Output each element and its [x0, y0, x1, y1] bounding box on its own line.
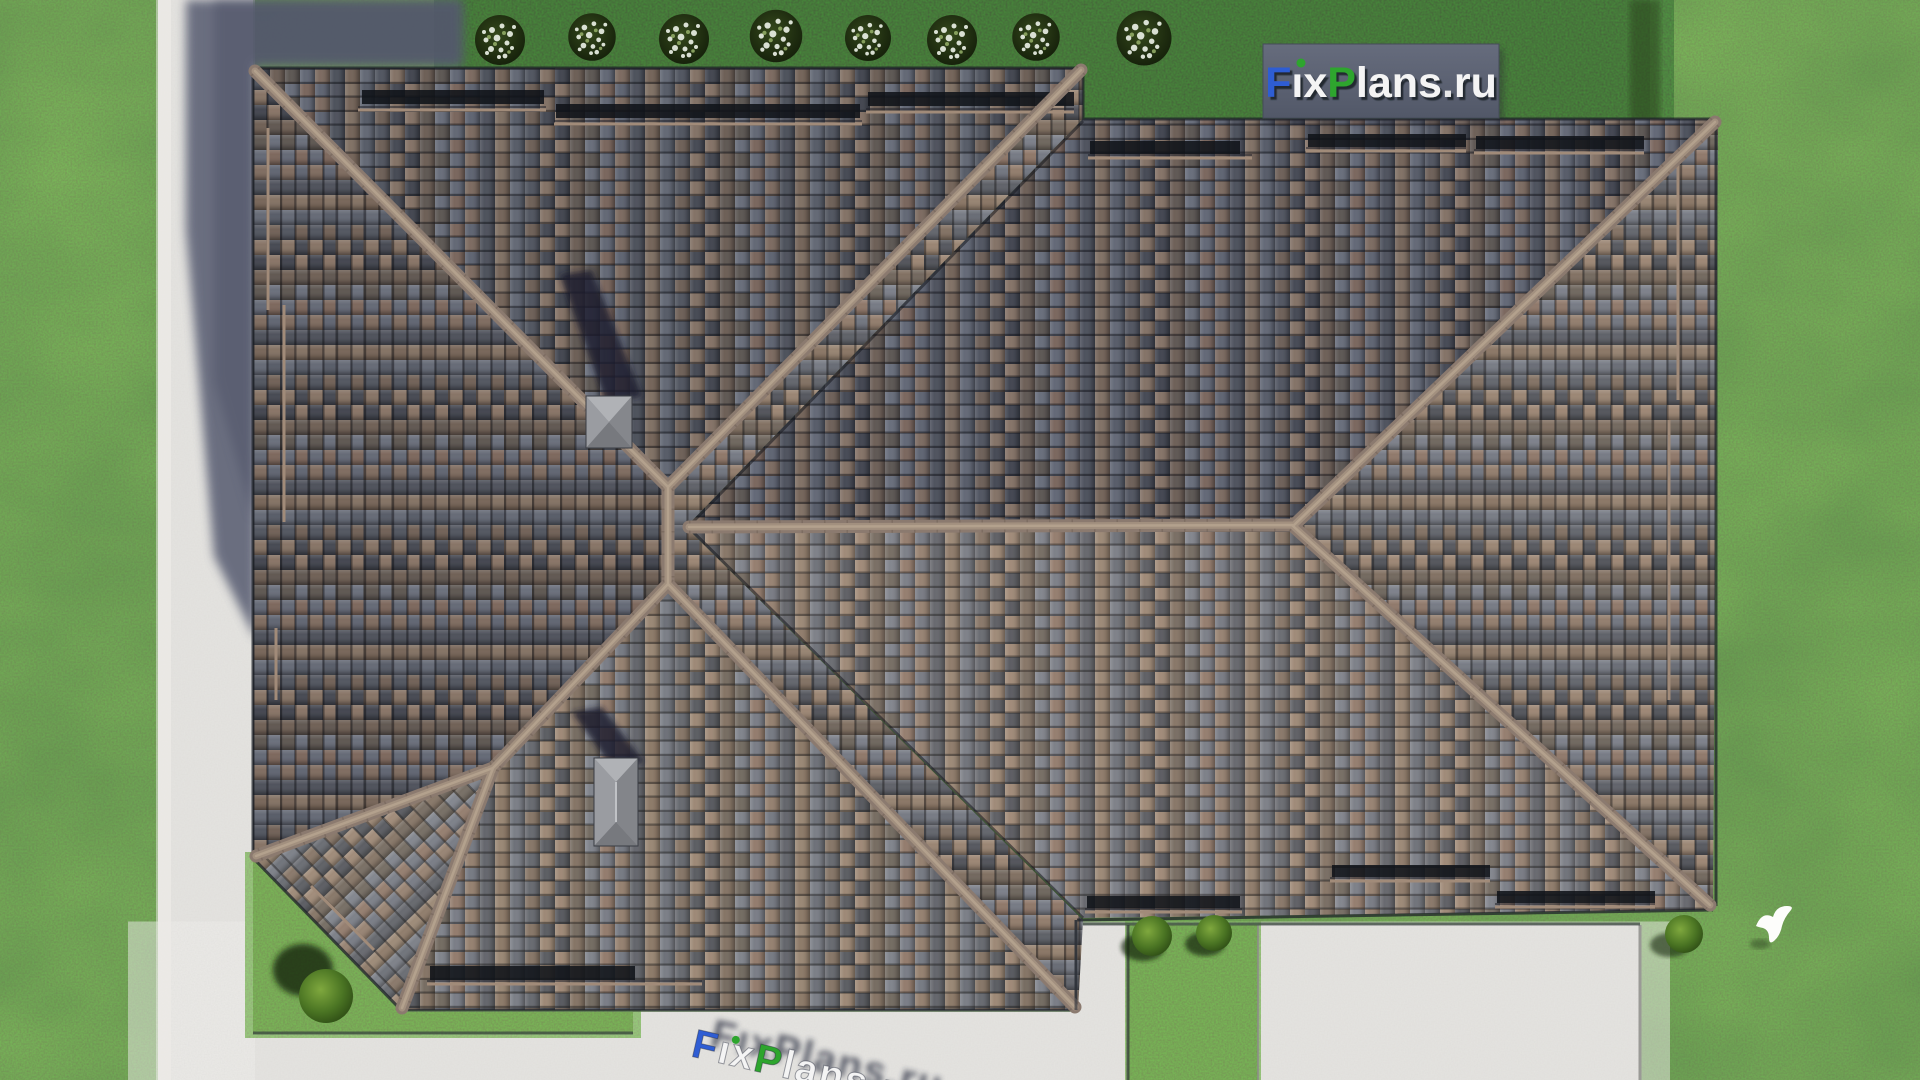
watermark-i-dot [1297, 59, 1306, 68]
path-curb-highlight [158, 0, 171, 1080]
hip-roof [253, 68, 1718, 1010]
render-canvas: FıxPlans.ru FıxPlans.ru FıxPlans.ru [0, 0, 1920, 1080]
bush-courtyard-left [1132, 916, 1172, 956]
bush-courtyard-right [1196, 915, 1232, 951]
fixplans-watermark: FıxPlans.ru [1263, 44, 1504, 123]
bird-shadow [1750, 939, 1770, 949]
bush-bottom-left [299, 969, 353, 1023]
flowering-shrub [475, 15, 525, 65]
bush-patio-corner [1665, 915, 1703, 953]
aerial-roof-scene: FıxPlans.ru FıxPlans.ru FıxPlans.ru [0, 0, 1920, 1080]
